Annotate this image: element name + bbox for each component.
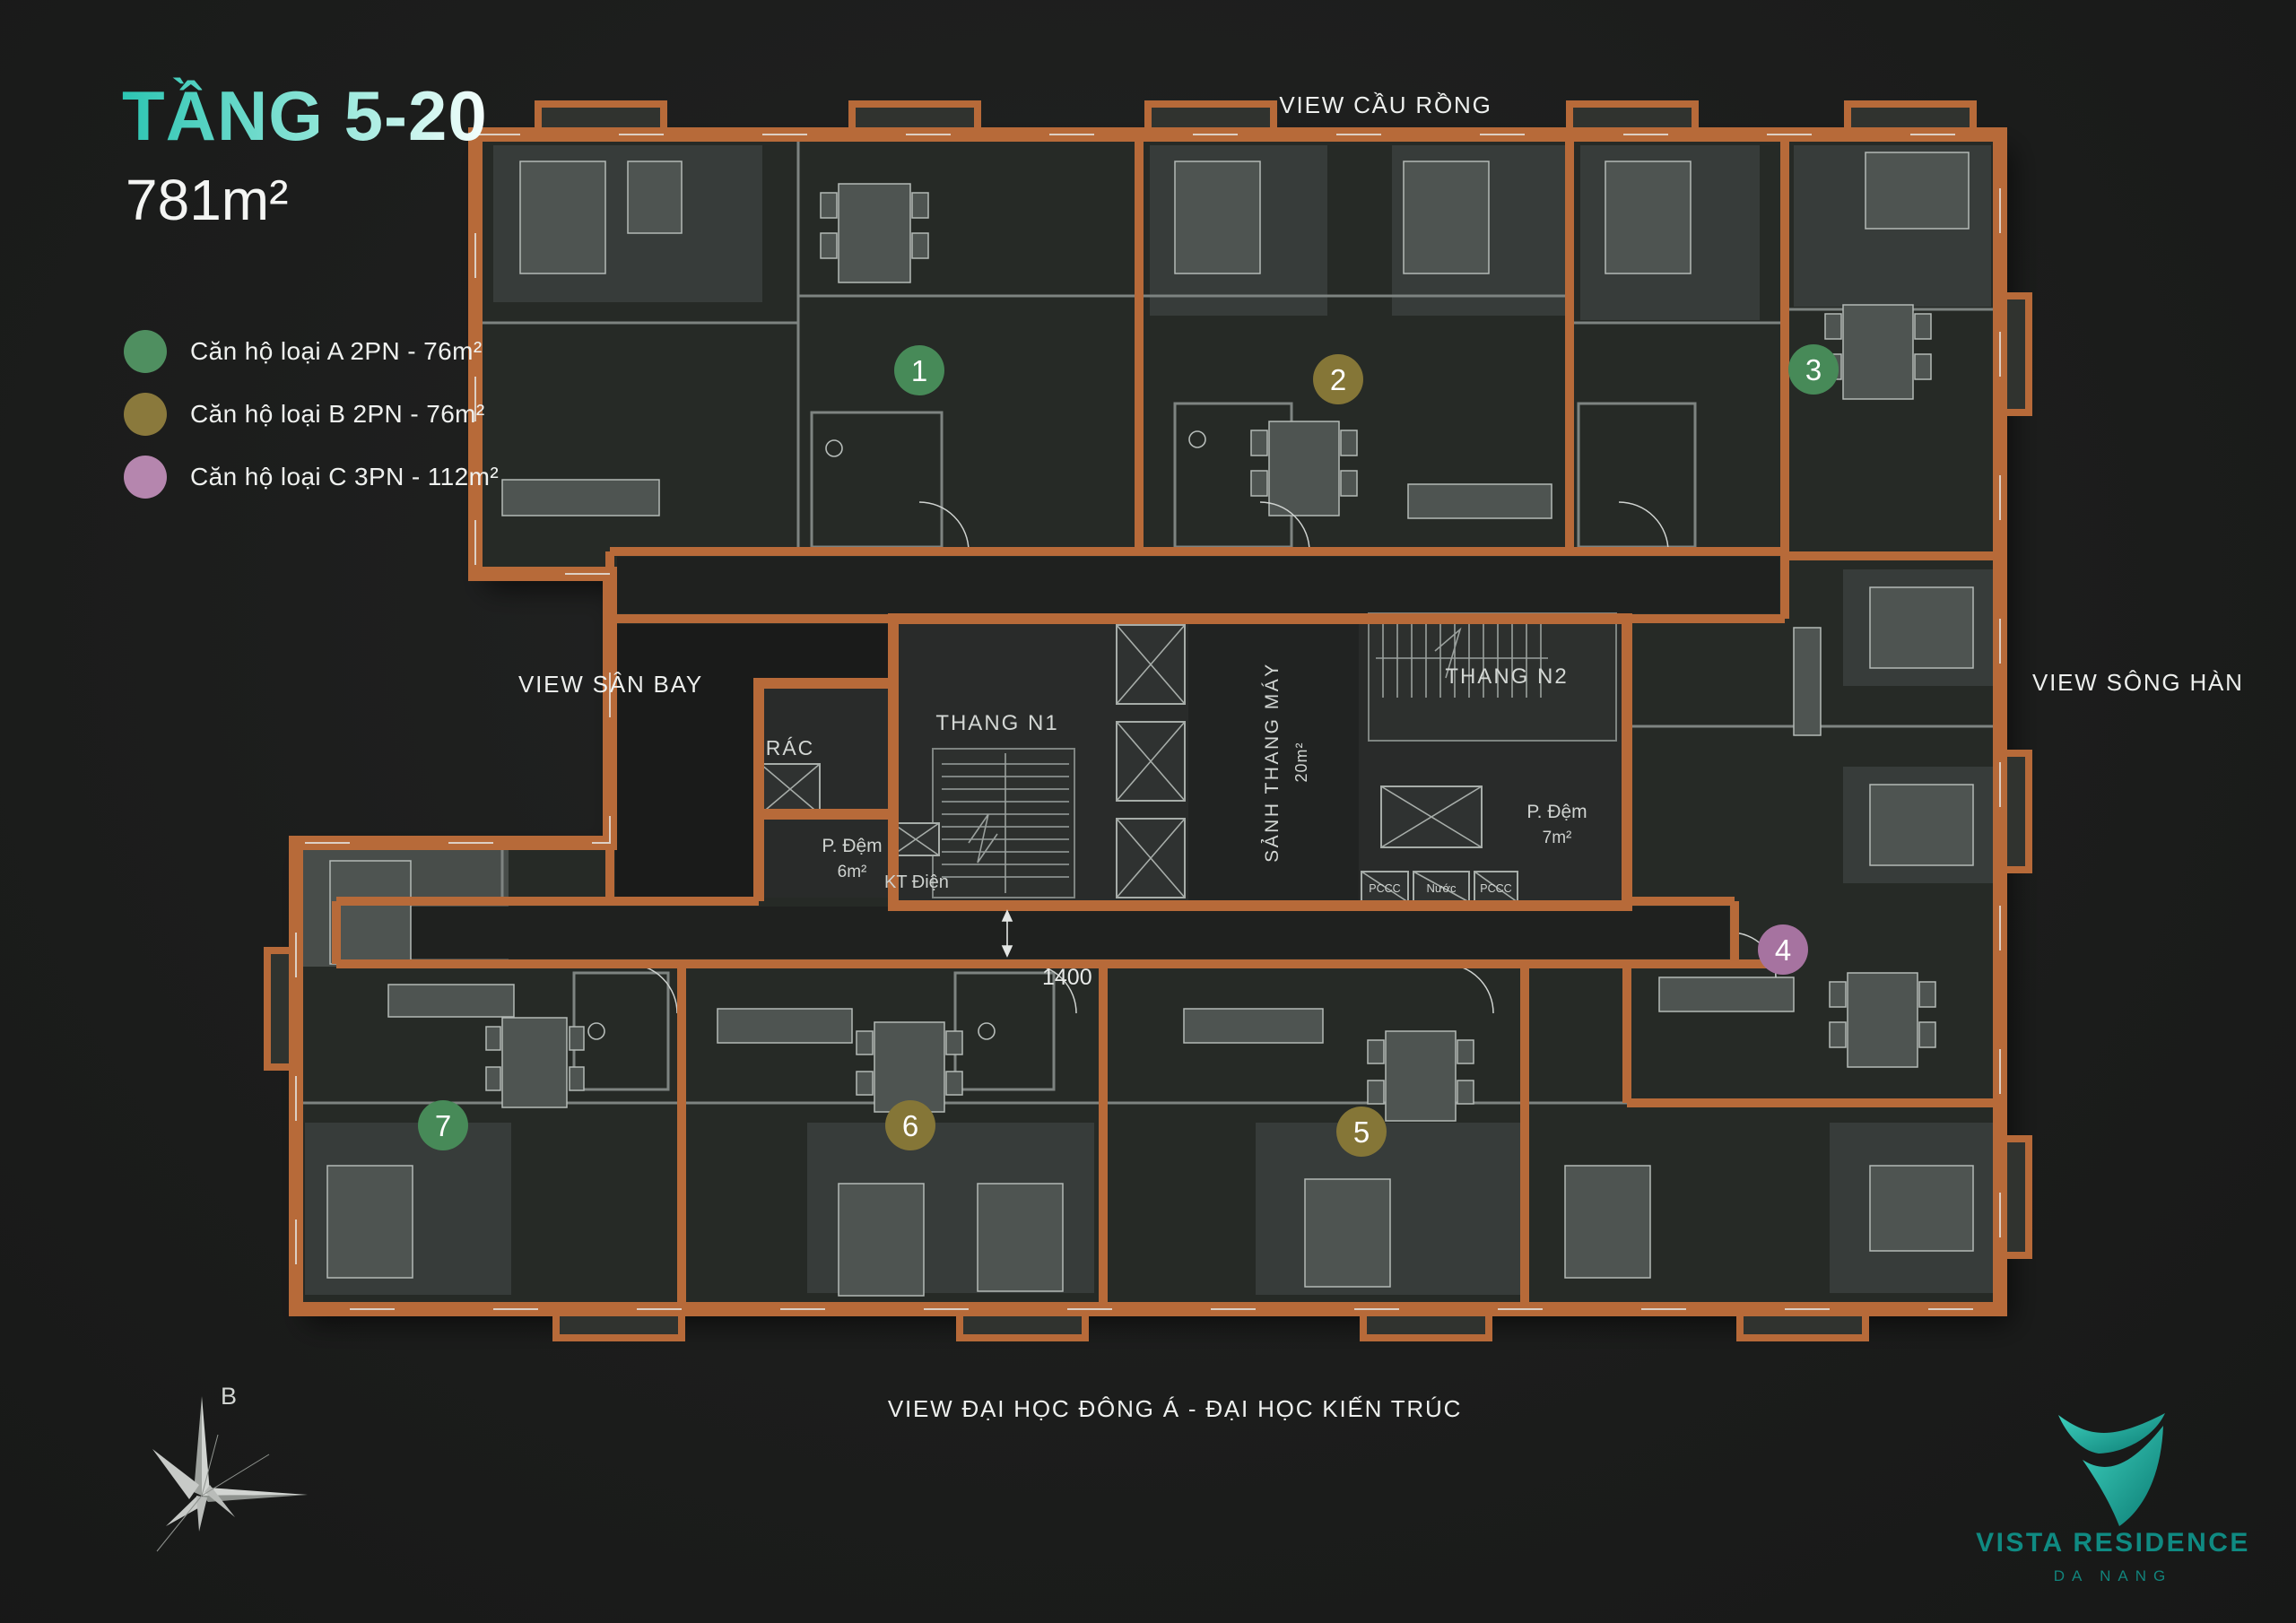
floor-area: 781m² <box>126 167 288 233</box>
poster: THANG N1 THANG N2 SẢNH THANG MÁY 20m² P.… <box>0 0 2296 1623</box>
compass-icon: B <box>152 1383 308 1551</box>
legend-item-type-a: Căn hộ loại A 2PN - 76m² <box>124 330 499 373</box>
recess-gap <box>615 680 755 898</box>
compass-north-label: B <box>221 1383 237 1410</box>
label-trash: RÁC <box>766 736 815 759</box>
view-label-right: VIEW SÔNG HÀN <box>2032 669 2244 697</box>
unit-badge-4-number: 4 <box>1775 933 1791 967</box>
legend-dot-type-b <box>124 393 167 436</box>
label-buffer2-area: 7m² <box>1543 829 1572 847</box>
unit-badge-1-number: 1 <box>911 354 927 387</box>
label-stair-n1: THANG N1 <box>935 711 1058 735</box>
unit-badge-7: 7 <box>418 1100 468 1150</box>
legend: Căn hộ loại A 2PN - 76m² Căn hộ loại B 2… <box>124 330 499 499</box>
label-buffer1: P. Đệm <box>822 836 882 856</box>
legend-label-type-a: Căn hộ loại A 2PN - 76m² <box>190 337 483 366</box>
view-label-top: VIEW CẦU RỒNG <box>1279 91 1492 119</box>
label-buffer2: P. Đệm <box>1526 802 1587 822</box>
unit-badge-3: 3 <box>1788 344 1839 395</box>
view-label-left: VIEW SÂN BAY <box>518 671 703 699</box>
legend-item-type-c: Căn hộ loại C 3PN - 112m² <box>124 456 499 499</box>
unit-badge-2: 2 <box>1313 354 1363 404</box>
unit-badge-4: 4 <box>1758 924 1808 975</box>
upper-corridor <box>617 557 1779 613</box>
unit-badge-7-number: 7 <box>435 1109 451 1142</box>
label-stair-n2: THANG N2 <box>1445 664 1568 689</box>
label-lobby: SẢNH THANG MÁY <box>1262 662 1283 863</box>
logo-icon <box>2058 1413 2165 1526</box>
floor-plan: THANG N1 THANG N2 SẢNH THANG MÁY 20m² P.… <box>0 0 2296 1623</box>
page-title: TẦNG 5-20 <box>122 75 488 157</box>
label-buffer1-area: 6m² <box>838 863 867 881</box>
unit-badge-2-number: 2 <box>1330 363 1346 396</box>
unit-badge-6-number: 6 <box>902 1109 918 1142</box>
legend-label-type-b: Căn hộ loại B 2PN - 76m² <box>190 400 485 429</box>
logo-city: DA NANG <box>2054 1567 2173 1585</box>
label-water: Nước <box>1426 881 1457 895</box>
dimension-text: 1400 <box>1042 965 1092 990</box>
unit-badge-5: 5 <box>1336 1107 1387 1157</box>
unit-badge-3-number: 3 <box>1805 353 1822 386</box>
label-electric: KT Điện <box>884 872 949 892</box>
legend-dot-type-c <box>124 456 167 499</box>
legend-label-type-c: Căn hộ loại C 3PN - 112m² <box>190 463 499 491</box>
logo-name: VISTA RESIDENCE <box>1976 1528 2250 1558</box>
legend-item-type-b: Căn hộ loại B 2PN - 76m² <box>124 393 499 436</box>
stair-n1-room <box>933 749 1074 898</box>
unit-badge-5-number: 5 <box>1353 1115 1370 1149</box>
legend-dot-type-a <box>124 330 167 373</box>
unit-badge-1: 1 <box>894 345 944 395</box>
label-fire2: PCCC <box>1480 882 1511 895</box>
view-label-bottom: VIEW ĐẠI HỌC ĐÔNG Á - ĐẠI HỌC KIẾN TRÚC <box>888 1395 1462 1423</box>
unit-badge-6: 6 <box>885 1100 935 1150</box>
label-fire1: PCCC <box>1369 882 1400 895</box>
label-lobby-area: 20m² <box>1292 742 1310 782</box>
lower-corridor <box>342 907 1729 959</box>
